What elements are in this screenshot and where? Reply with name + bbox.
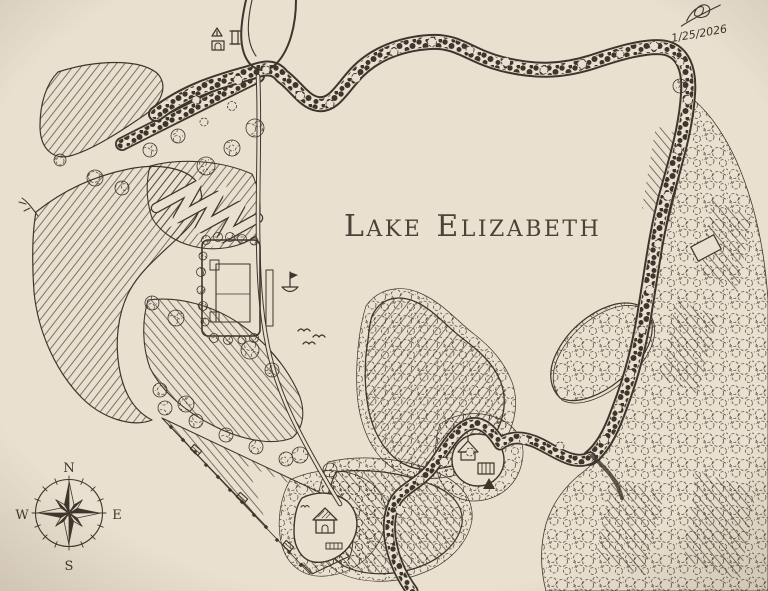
lake-elizabeth-map: N S W E LAKEELIZABETH 1/25/2026 xyxy=(0,0,768,591)
hand-drawn-map-page: N S W E LAKEELIZABETH 1/25/2026 xyxy=(0,0,768,591)
compass-west-label: W xyxy=(15,508,29,523)
compass-east-label: E xyxy=(112,508,122,523)
compass-south-label: S xyxy=(65,559,74,574)
compass-north-label: N xyxy=(63,461,74,476)
